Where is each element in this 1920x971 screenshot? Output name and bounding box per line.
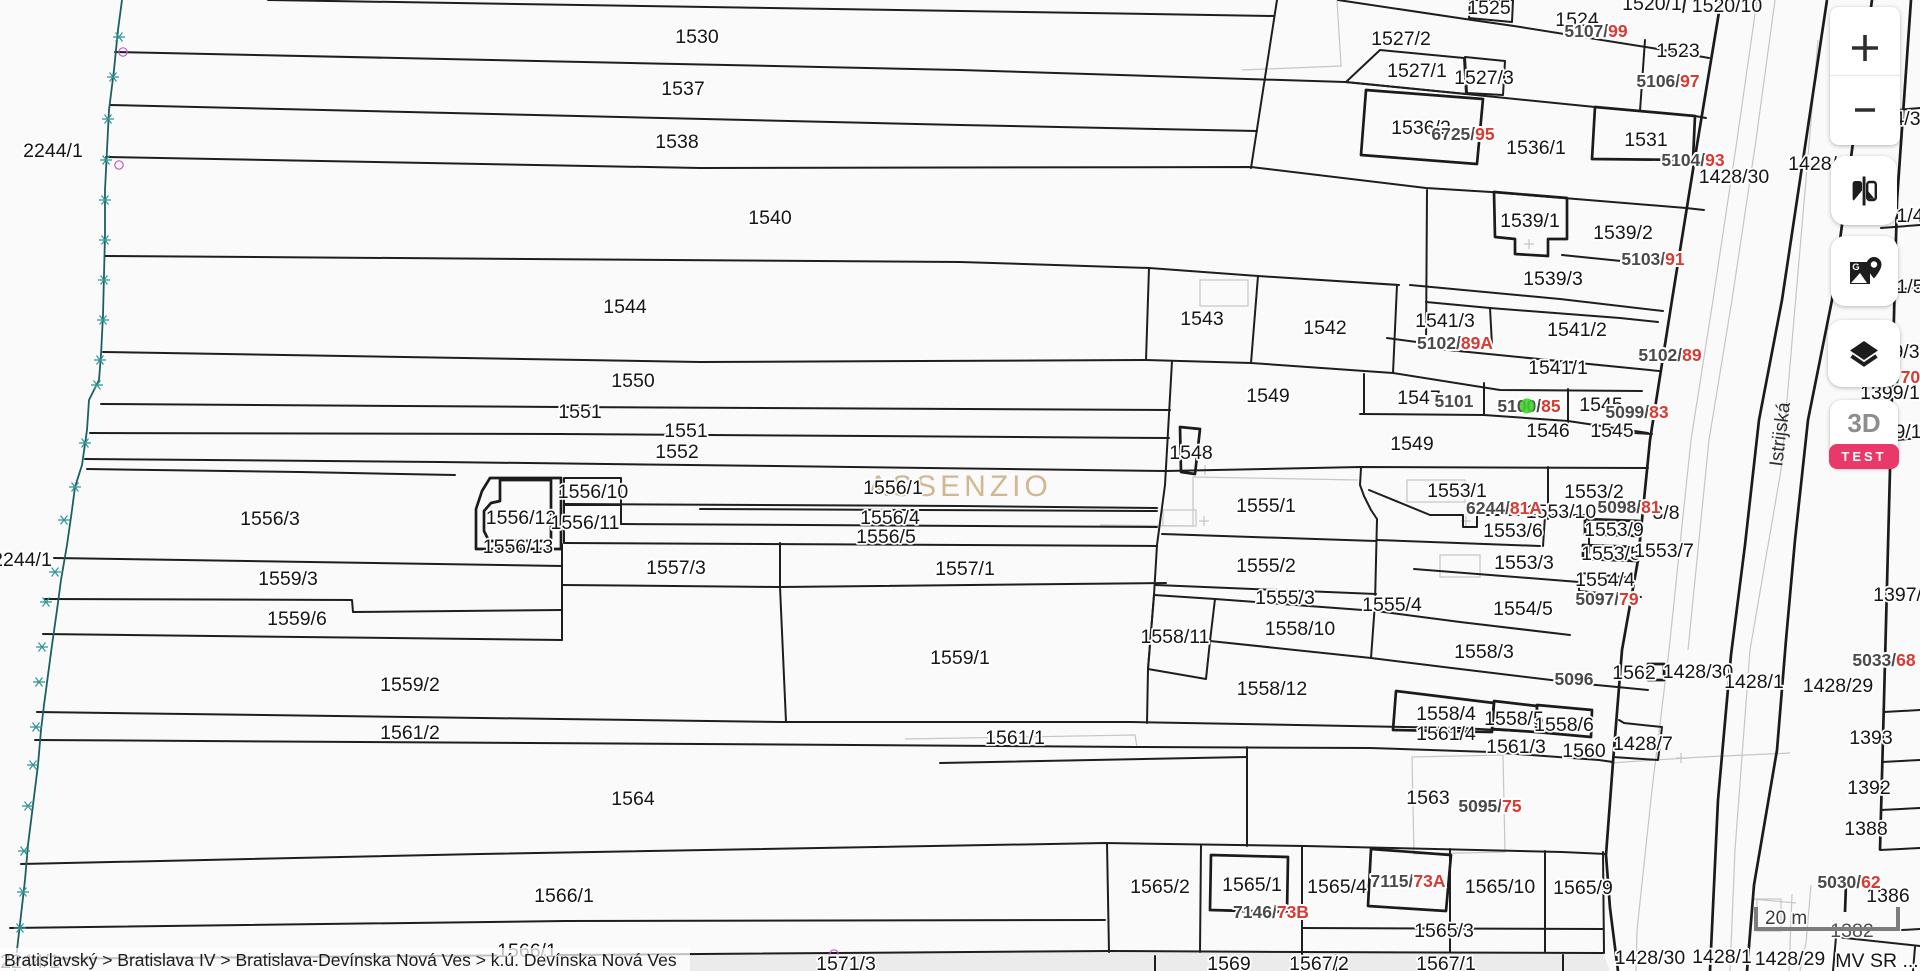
svg-text:1548: 1548 [1169, 442, 1212, 464]
svg-text:1565/2: 1565/2 [1130, 876, 1190, 898]
svg-text:1428/1: 1428/1 [1692, 946, 1752, 968]
svg-text:1520/10: 1520/10 [1692, 0, 1763, 17]
svg-text:1563: 1563 [1406, 787, 1449, 809]
svg-text:5097/79: 5097/79 [1575, 589, 1639, 609]
svg-text:1428/7: 1428/7 [1613, 733, 1673, 755]
svg-text:1556/10: 1556/10 [558, 481, 629, 503]
svg-text:1527/3: 1527/3 [1454, 67, 1514, 89]
svg-text:1562: 1562 [1612, 662, 1655, 684]
svg-text:1553/7: 1553/7 [1634, 540, 1694, 562]
svg-text:1540: 1540 [748, 207, 792, 229]
svg-text:1541/2: 1541/2 [1547, 319, 1607, 341]
svg-text:5096: 5096 [1555, 669, 1594, 689]
svg-text:1561/1: 1561/1 [985, 727, 1045, 749]
svg-text:1569: 1569 [1207, 953, 1250, 971]
svg-text:1558/11: 1558/11 [1140, 626, 1209, 648]
svg-text:6725/95: 6725/95 [1431, 124, 1495, 144]
svg-text:1558/4: 1558/4 [1416, 703, 1476, 725]
svg-text:1393: 1393 [1849, 727, 1892, 749]
svg-text:1553/3: 1553/3 [1494, 552, 1554, 574]
svg-text:6244/81A: 6244/81A [1466, 498, 1542, 518]
svg-text:1541/1: 1541/1 [1528, 357, 1588, 379]
svg-text:1557/3: 1557/3 [646, 557, 706, 579]
svg-text:1531: 1531 [1624, 129, 1667, 151]
svg-text:1554/5: 1554/5 [1493, 598, 1553, 620]
svg-text:1559/3: 1559/3 [258, 568, 318, 590]
svg-text:1560: 1560 [1562, 740, 1606, 762]
svg-text:1428/29: 1428/29 [1803, 675, 1874, 697]
svg-text:1556/1: 1556/1 [863, 477, 923, 499]
svg-text:5095/75: 5095/75 [1458, 796, 1522, 816]
svg-text:1549: 1549 [1390, 433, 1433, 455]
svg-text:5033/68: 5033/68 [1852, 650, 1916, 670]
svg-text:20 m: 20 m [1765, 908, 1807, 929]
svg-text:1567/2: 1567/2 [1289, 953, 1349, 971]
svg-text:1/4: 1/4 [1896, 205, 1920, 227]
svg-text:1553/6: 1553/6 [1483, 520, 1543, 542]
svg-text:1559/2: 1559/2 [380, 674, 440, 696]
svg-text:1/5: 1/5 [1896, 276, 1920, 298]
svg-text:1559/1: 1559/1 [930, 647, 990, 669]
svg-text:1556/3: 1556/3 [240, 508, 300, 530]
svg-text:1550: 1550 [611, 370, 655, 392]
svg-text:1558/3: 1558/3 [1454, 641, 1514, 663]
svg-text:1558/12: 1558/12 [1237, 678, 1308, 700]
svg-text:1553/5: 1553/5 [1581, 543, 1641, 565]
svg-text:1392: 1392 [1847, 777, 1890, 799]
svg-text:1530: 1530 [675, 26, 719, 48]
svg-text:1559/6: 1559/6 [267, 608, 327, 630]
svg-text:1565/3: 1565/3 [1414, 920, 1474, 942]
svg-text:5101: 5101 [1435, 391, 1474, 411]
svg-text:1428/29: 1428/29 [1755, 948, 1826, 970]
svg-text:5030/62: 5030/62 [1817, 872, 1881, 892]
svg-text:1566/1: 1566/1 [534, 885, 594, 907]
svg-text:5098/81: 5098/81 [1597, 497, 1661, 517]
svg-text:1428/30: 1428/30 [1615, 947, 1686, 969]
svg-text:1567/1: 1567/1 [1416, 953, 1476, 971]
svg-text:1520/1: 1520/1 [1622, 0, 1682, 15]
svg-text:5102/89: 5102/89 [1638, 345, 1702, 365]
svg-text:1541/3: 1541/3 [1415, 310, 1475, 332]
svg-text:1543: 1543 [1180, 308, 1223, 330]
svg-text:1565/9: 1565/9 [1553, 877, 1613, 899]
svg-text:1545: 1545 [1590, 420, 1634, 442]
svg-text:1525: 1525 [1467, 0, 1511, 19]
svg-text:1556/11: 1556/11 [550, 512, 619, 534]
svg-text:1553/9: 1553/9 [1584, 519, 1644, 541]
svg-text:2244/1: 2244/1 [23, 140, 83, 162]
svg-text:1551: 1551 [558, 401, 601, 423]
svg-text:1554/4: 1554/4 [1575, 569, 1635, 591]
svg-text:5104/93: 5104/93 [1661, 150, 1725, 170]
svg-text:1539/3: 1539/3 [1523, 268, 1583, 290]
svg-text:1542: 1542 [1303, 317, 1346, 339]
svg-text:1556/12: 1556/12 [486, 507, 557, 529]
svg-text:G: G [1852, 262, 1859, 273]
svg-text:1527/2: 1527/2 [1371, 28, 1431, 50]
svg-text:1527/1: 1527/1 [1387, 60, 1447, 82]
svg-text:1388: 1388 [1844, 818, 1887, 840]
svg-text:1551: 1551 [664, 420, 707, 442]
svg-text:5099/83: 5099/83 [1605, 402, 1669, 422]
svg-text:1555/3: 1555/3 [1255, 587, 1315, 609]
svg-text:5103/91: 5103/91 [1621, 249, 1685, 269]
svg-text:1552: 1552 [655, 441, 698, 463]
svg-text:1556/5: 1556/5 [856, 526, 916, 548]
svg-text:1561/4: 1561/4 [1416, 723, 1476, 745]
svg-text:1565/4: 1565/4 [1307, 876, 1367, 898]
svg-text:1544: 1544 [603, 296, 647, 318]
svg-text:1558/6: 1558/6 [1534, 714, 1594, 736]
svg-text:1538: 1538 [655, 131, 698, 153]
svg-text:1555/1: 1555/1 [1236, 495, 1296, 517]
svg-text:1571/3: 1571/3 [816, 953, 876, 971]
svg-text:1565/1: 1565/1 [1222, 874, 1282, 896]
svg-text:1428/1: 1428/1 [1724, 671, 1784, 693]
svg-text:1537: 1537 [661, 78, 704, 100]
svg-text:9/1: 9/1 [1894, 421, 1920, 443]
svg-text:1555/2: 1555/2 [1236, 555, 1296, 577]
svg-text:1523: 1523 [1656, 40, 1699, 62]
svg-text:1428/30: 1428/30 [1663, 661, 1734, 683]
svg-text:MV SR ...: MV SR ... [1835, 950, 1918, 971]
svg-text:1397/1: 1397/1 [1873, 584, 1920, 606]
svg-text:1557/1: 1557/1 [935, 558, 995, 580]
svg-text:5107/99: 5107/99 [1564, 21, 1628, 41]
svg-text:5102/89A: 5102/89A [1417, 333, 1493, 353]
svg-text:1564: 1564 [611, 788, 655, 810]
svg-text:5106/97: 5106/97 [1636, 71, 1699, 91]
svg-text:1556/13: 1556/13 [483, 536, 554, 558]
svg-text:7115/73A: 7115/73A [1371, 871, 1446, 891]
svg-text:1539/2: 1539/2 [1593, 222, 1653, 244]
svg-text:2244/1: 2244/1 [0, 549, 52, 571]
svg-text:1549: 1549 [1246, 385, 1289, 407]
svg-text:1558/10: 1558/10 [1265, 618, 1336, 640]
svg-text:1555/4: 1555/4 [1362, 594, 1422, 616]
svg-text:1561/2: 1561/2 [380, 722, 440, 744]
svg-text:1539/1: 1539/1 [1500, 210, 1560, 232]
svg-text:1536/1: 1536/1 [1506, 137, 1566, 159]
svg-text:1565/10: 1565/10 [1465, 876, 1536, 898]
svg-text:1546: 1546 [1526, 420, 1569, 442]
svg-text:1561/3: 1561/3 [1486, 736, 1546, 758]
svg-text:7146/73B: 7146/73B [1233, 902, 1309, 922]
